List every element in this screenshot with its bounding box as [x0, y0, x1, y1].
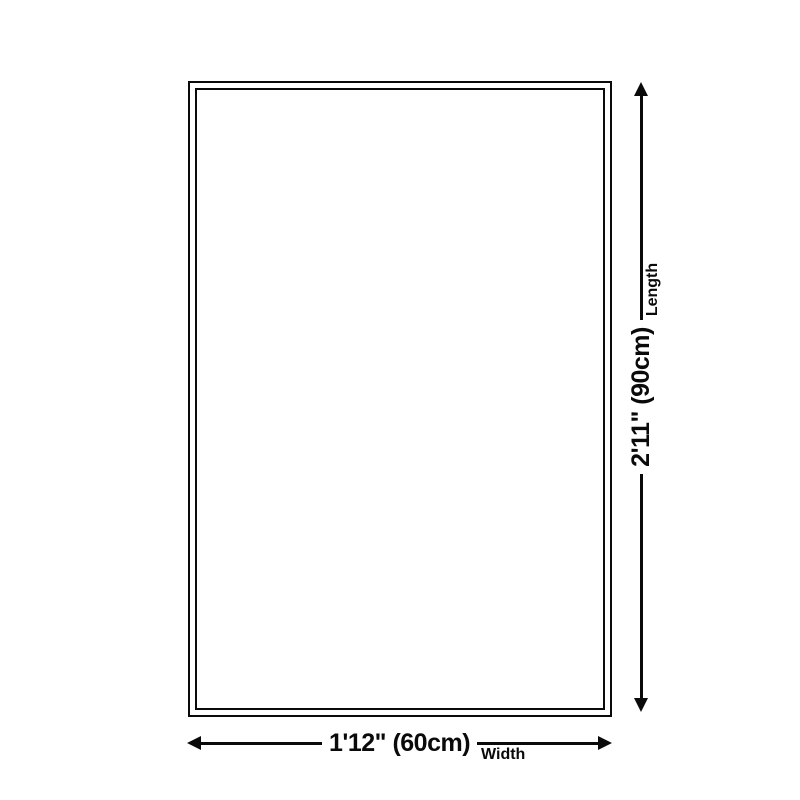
product-outline: [188, 81, 612, 717]
length-dimension-line-top-wrap: Length: [620, 96, 662, 320]
arrow-down-icon: [634, 698, 648, 712]
length-axis-label: Length: [645, 263, 661, 316]
dimension-diagram: 1'12" (60cm) Width 2'11" (90cm) Length: [0, 0, 800, 800]
product-outline-inner-border: [195, 88, 605, 710]
width-dimension-annotation: 1'12" (60cm) Width: [187, 722, 612, 764]
length-dimension-line-top: [640, 96, 643, 320]
width-dimension-line-left: [201, 742, 322, 745]
length-dimension-line-bottom: [640, 474, 643, 698]
arrow-left-icon: [187, 736, 201, 750]
width-axis-label: Width: [481, 747, 525, 763]
width-dimension-line-right: [477, 742, 598, 745]
arrow-right-icon: [598, 736, 612, 750]
arrow-up-icon: [634, 82, 648, 96]
length-dimension-value: 2'11" (90cm): [627, 327, 656, 467]
width-dimension-value: 1'12" (60cm): [329, 729, 470, 758]
length-dimension-annotation: 2'11" (90cm) Length: [620, 82, 662, 712]
width-dimension-line-right-wrap: Width: [477, 722, 598, 764]
